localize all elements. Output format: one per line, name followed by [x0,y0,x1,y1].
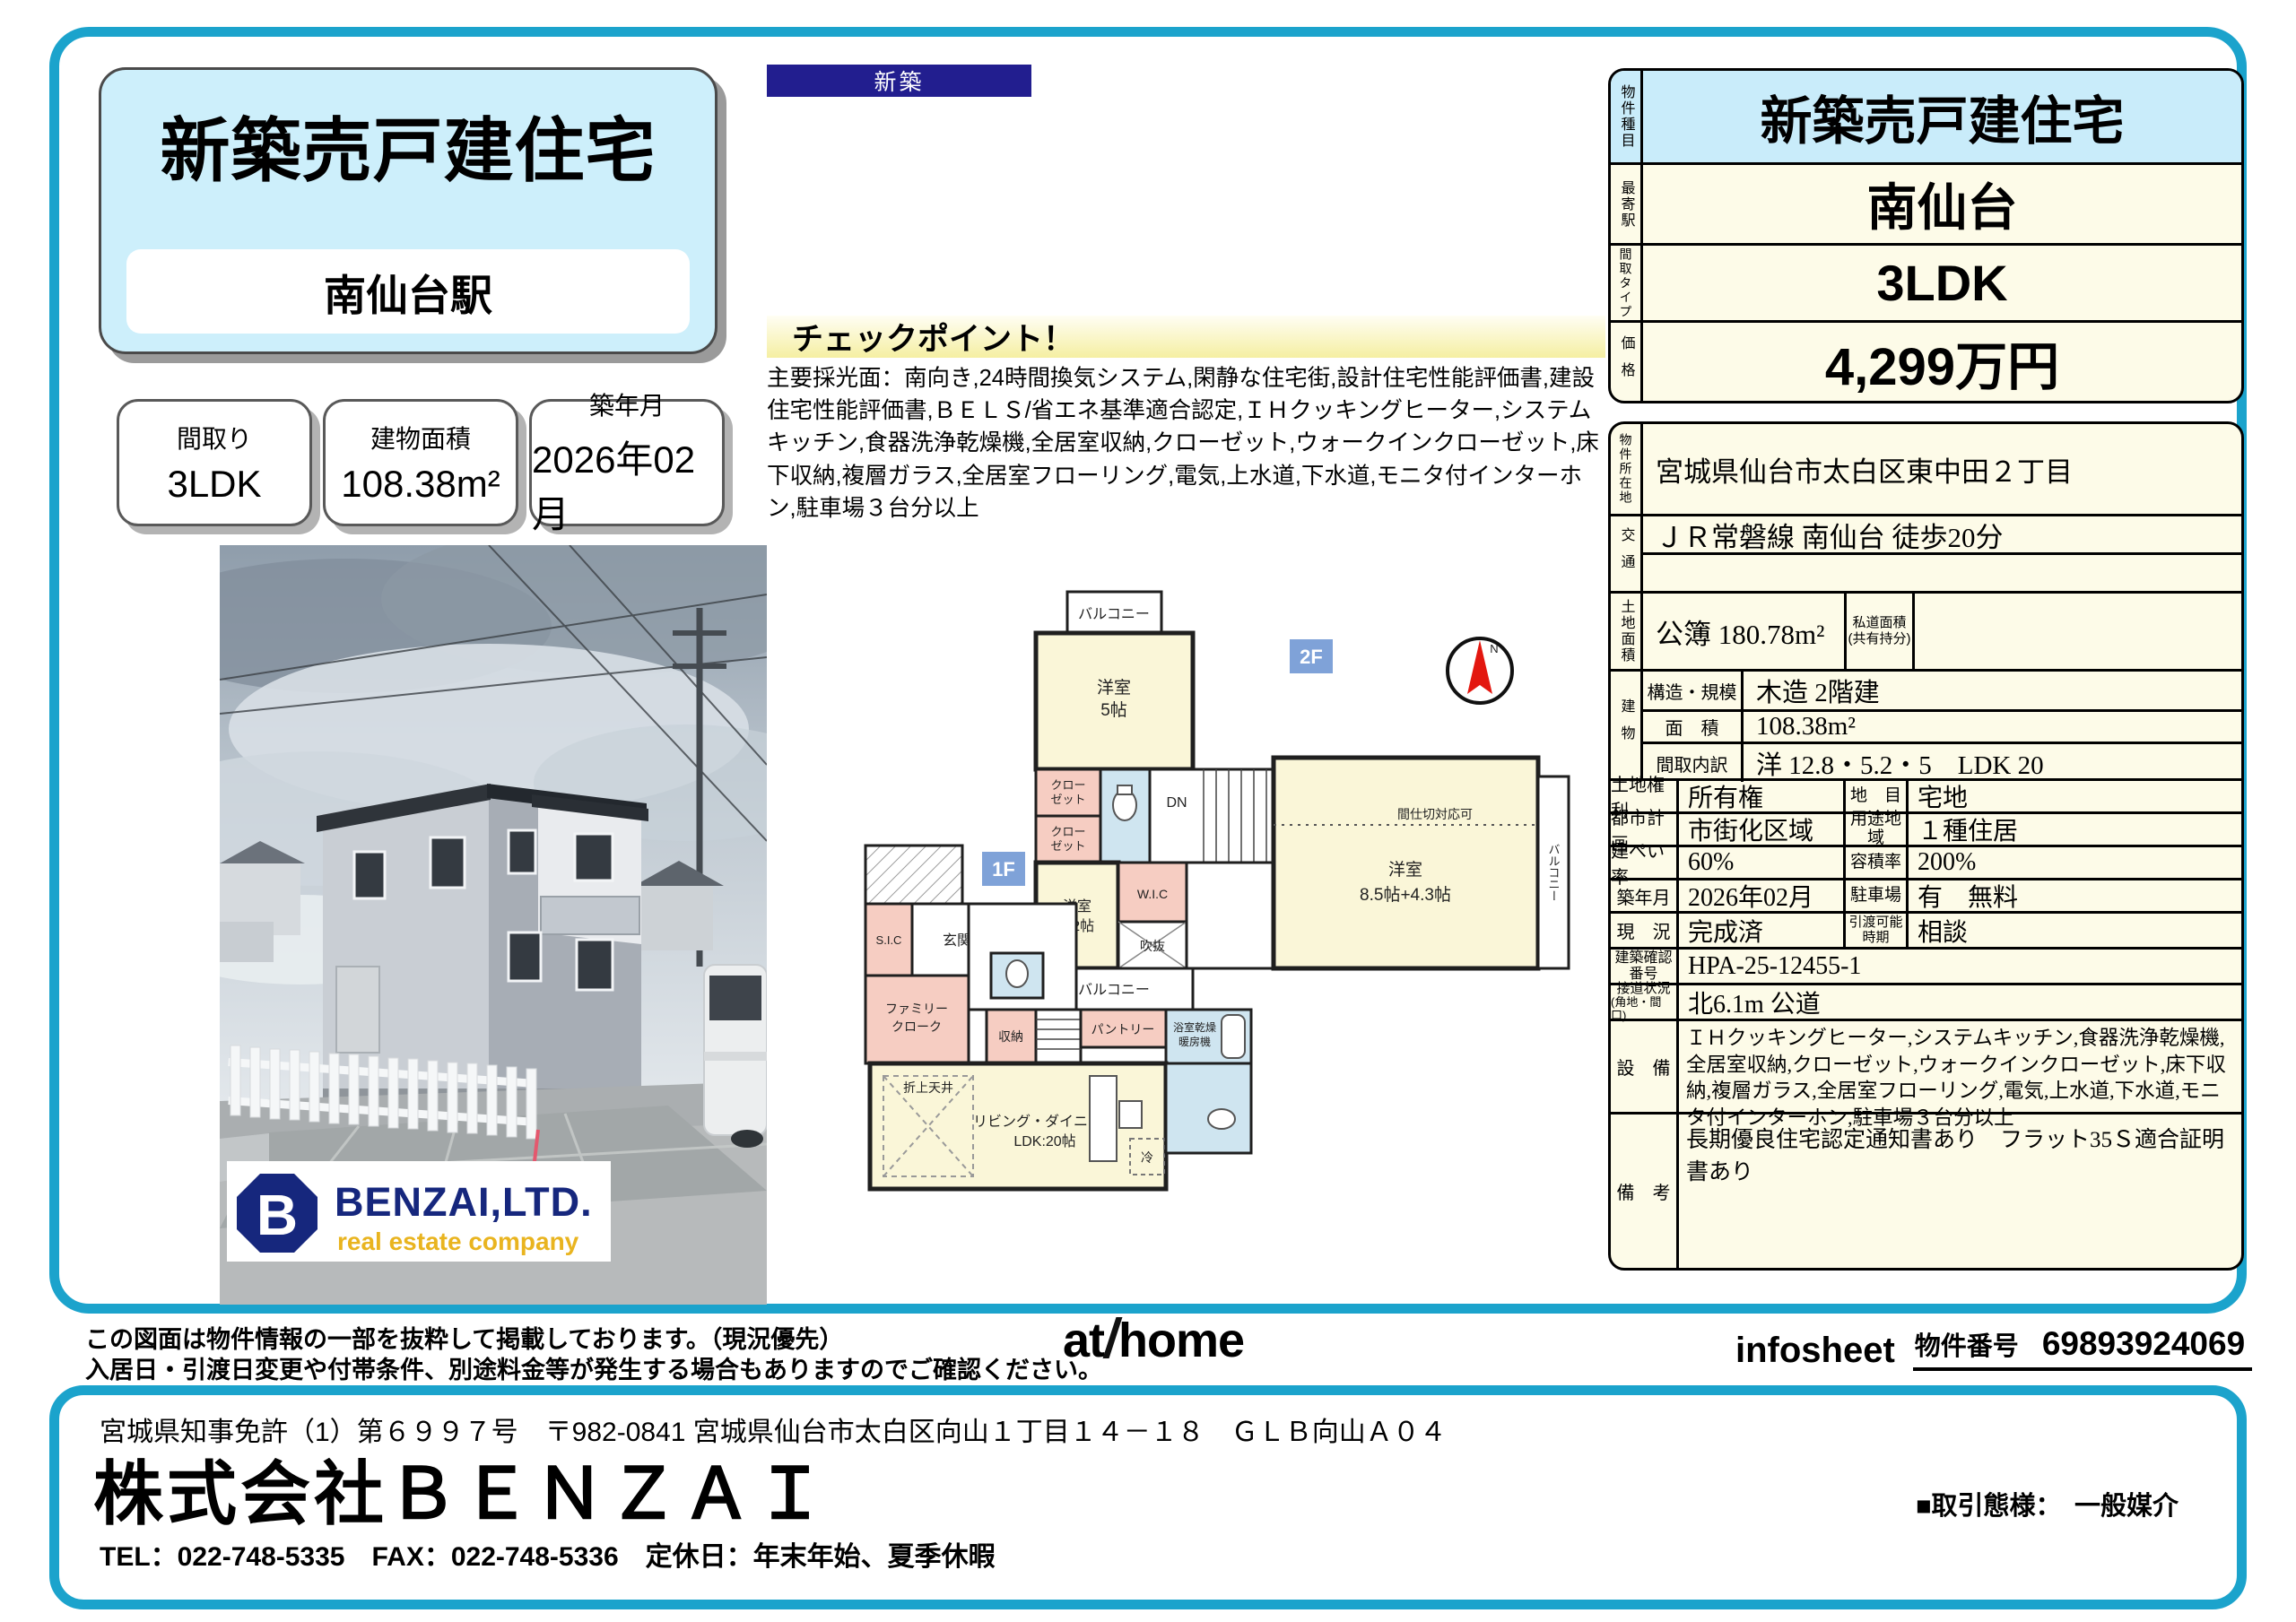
contact-line: TEL：022-748-5335 FAX：022-748-5336 定休日：年末… [100,1534,996,1574]
fact-built: 築年月 2026年02月 [529,399,725,526]
bath-label: 暖房機 [1178,1035,1211,1048]
family-closet-label: クローク [891,1019,942,1034]
bath-label: 浴室乾燥 [1173,1020,1216,1034]
fact-label: 築年月 [589,386,665,422]
private-road-label: 私道面積 (共有持分) [1847,594,1915,669]
stairs-dn-label: DN [1166,795,1187,811]
athome-logo: at home [1063,1313,1244,1368]
station-box: 南仙台駅 [126,249,690,334]
spec-row-equipment: 設 備 ＩＨクッキングヒーター,システムキッチン,食器洗浄乾燥機,全居室収納,ク… [1611,1019,2241,1112]
spec-label: 最寄駅 [1611,165,1643,243]
compass-icon: N [1448,638,1512,703]
fact-label: 間取り [177,420,252,455]
sink-icon [1208,1109,1235,1129]
pantry-label: パントリー [1091,1022,1155,1037]
spec-value-empty [1643,555,2241,591]
spec-row-building: 建物 構造・規模 木造 2階建 面 積 108.38m² 間取内訳 洋 12.8… [1611,669,2241,778]
closet-label: クロー [1050,778,1085,792]
spec-row-pair: 現 況 完成済 引渡可能時期 相談 [1611,911,2241,947]
fridge-label: 冷 [1141,1150,1153,1165]
kitchen-counter [1090,1076,1117,1161]
genkan-label: 玄関 [943,932,971,949]
porch [865,846,962,904]
spec-row-road: 接道状況(角地・間口) 北6.1m 公道 [1611,983,2241,1019]
spec-label: 物件所在地 [1620,433,1632,505]
infosheet-label: infosheet [1735,1331,1895,1371]
benzai-logo: B BENZAI,LTD. real estate company [227,1161,611,1262]
partition-label: 間仕切対応可 [1397,807,1473,821]
spec-row-pair: 建ぺい率 60% 容積率 200% [1611,845,2241,878]
spec-table-top: 物件種目 新築売戸建住宅 最寄駅 南仙台 間取タイプ 3LDK 価格 4,299… [1608,68,2244,403]
main-house [317,784,648,1108]
spec-value: 新築売戸建住宅 [1643,71,2241,162]
spec-row-access: 交通 ＪＲ常磐線 南仙台 徒歩20分 [1611,514,2241,591]
spec-label: 価格 [1611,323,1643,401]
spec-row-pair: 築年月 2026年02月 駐車場 有 無料 [1611,878,2241,911]
svg-text:1F: 1F [992,858,1015,880]
spec-row-land: 土地面積 公簿 180.78m² 私道面積 (共有持分) [1611,591,2241,669]
spec-row-confirm: 建築確認番号 HPA-25-12455-1 [1611,947,2241,983]
spec-value: 3LDK [1643,246,2241,320]
balcony-label: バルコニー [1547,844,1561,902]
fact-value: 3LDK [167,463,261,506]
new-construction-badge: 新築 [767,65,1031,97]
spec-row-pair: 土地権利 所有権 地 目 宅地 [1611,778,2241,811]
spec-value: 宮城県仙台市太白区東中田２丁目 [1643,424,2241,514]
fact-area: 建物面積 108.38m² [323,399,518,526]
spec-value: 4,299万円 [1643,323,2241,401]
spec-value: ＪＲ常磐線 南仙台 徒歩20分 [1643,516,2241,555]
building-subrow: 間取内訳 洋 12.8・5.2・5 LDK 20 [1643,742,2241,782]
private-road-value [1915,594,2241,669]
spec-row: 最寄駅 南仙台 [1611,162,2241,243]
balcony-label: バルコニー [1078,607,1150,622]
room-label: 洋室 [1388,860,1422,880]
deal-type: ■取引態様： 一般媒介 [1916,1485,2179,1522]
exterior-photo: B BENZAI,LTD. real estate company [220,545,767,1305]
toilet-icon [1006,960,1028,987]
disclaimer-line-2: 入居日・引渡日変更や付帯条件、別途料金等が発生する場合もありますのでご確認くださ… [85,1350,1102,1385]
fact-value: 108.38m² [341,463,500,506]
title-card: 新築売戸建住宅 南仙台駅 [99,67,717,354]
spec-label: 交通 [1619,527,1633,581]
spec-label: 間取タイプ [1611,246,1643,320]
flyer-page: 新築売戸建住宅 南仙台駅 新築 間取り 3LDK 建物面積 108.38m² 築… [0,0,2296,1622]
floor-plan: バルコニー 洋室 5帖 クロー ゼット クロー ゼット DN 洋室 5.2帖 [861,545,1578,1227]
page-title: 新築売戸建住宅 [101,95,715,195]
wic-label: W.I.C [1137,887,1168,901]
void-label: 吹抜 [1140,939,1165,953]
spec-row: 間取タイプ 3LDK [1611,243,2241,320]
benzai-logo-initial: B [257,1183,298,1247]
balcony-label: バルコニー [1078,983,1150,998]
svg-text:N: N [1490,642,1498,655]
checkpoint-body: 主要採光面：南向き,24時間換気システム,閑静な住宅街,設計住宅性能評価書,建設… [767,362,1608,525]
family-closet-label: ファミリー [885,1002,948,1016]
closet-label: クロー [1050,825,1085,838]
spec-row: 物件種目 新築売戸建住宅 [1611,71,2241,162]
sic-label: S.I.C [876,933,902,947]
fact-madori: 間取り 3LDK [117,399,312,526]
spec-label: 土地面積 [1619,599,1633,664]
benzai-logo-tagline: real estate company [337,1227,579,1255]
bathtub-icon [1222,1015,1245,1058]
spec-value: 南仙台 [1643,165,2241,243]
room-label: 8.5帖+4.3帖 [1360,885,1451,905]
spec-value: 公簿 180.78m² [1643,594,1847,669]
svg-text:2F: 2F [1300,646,1323,668]
spec-label: 物件種目 [1611,71,1643,162]
white-van [704,965,767,1148]
spec-row-location: 物件所在地 宮城県仙台市太白区東中田２丁目 [1611,424,2241,514]
property-number: 物件番号 69893924069 [1913,1325,2252,1371]
room-label: 5帖 [1100,700,1127,720]
room-label: 洋室 [1097,678,1131,698]
checkpoint-title: チェックポイント！ [767,316,1605,358]
company-name: 株式会社ＢＥＮＺＡＩ [93,1438,829,1539]
benzai-logo-name: BENZAI,LTD. [335,1179,593,1225]
building-subrow: 面 積 108.38m² [1643,709,2241,742]
spec-table-main: 物件所在地 宮城県仙台市太白区東中田２丁目 交通 ＪＲ常磐線 南仙台 徒歩20分… [1608,421,2244,1271]
infosheet-line: infosheet 物件番号 69893924069 [1735,1325,2252,1371]
fact-label: 建物面積 [370,420,471,455]
spec-row-pair: 都市計画 市街化区域 用途地域 １種住居 [1611,811,2241,845]
living-label: LDK:20帖 [1013,1133,1075,1149]
spec-row-remarks: 備 考 長期優良住宅認定通知書あり フラット35Ｓ適合証明書あり [1611,1112,2241,1268]
fact-value: 2026年02月 [532,429,722,539]
spec-row: 価格 4,299万円 [1611,320,2241,401]
closet-label: ゼット [1050,793,1085,806]
closet-label: ゼット [1050,839,1085,853]
floor-2f: バルコニー 洋室 5帖 クロー ゼット クロー ゼット DN 洋室 5.2帖 [1036,592,1569,1010]
storage-label: 収納 [998,1029,1023,1044]
company-box: 宮城県知事免許（1）第６９９７号 〒982-0841 宮城県仙台市太白区向山１丁… [49,1385,2247,1609]
ceiling-label: 折上天井 [903,1080,953,1095]
spec-label: 建物 [1619,698,1633,752]
building-subrow: 構造・規模 木造 2階建 [1643,672,2241,709]
